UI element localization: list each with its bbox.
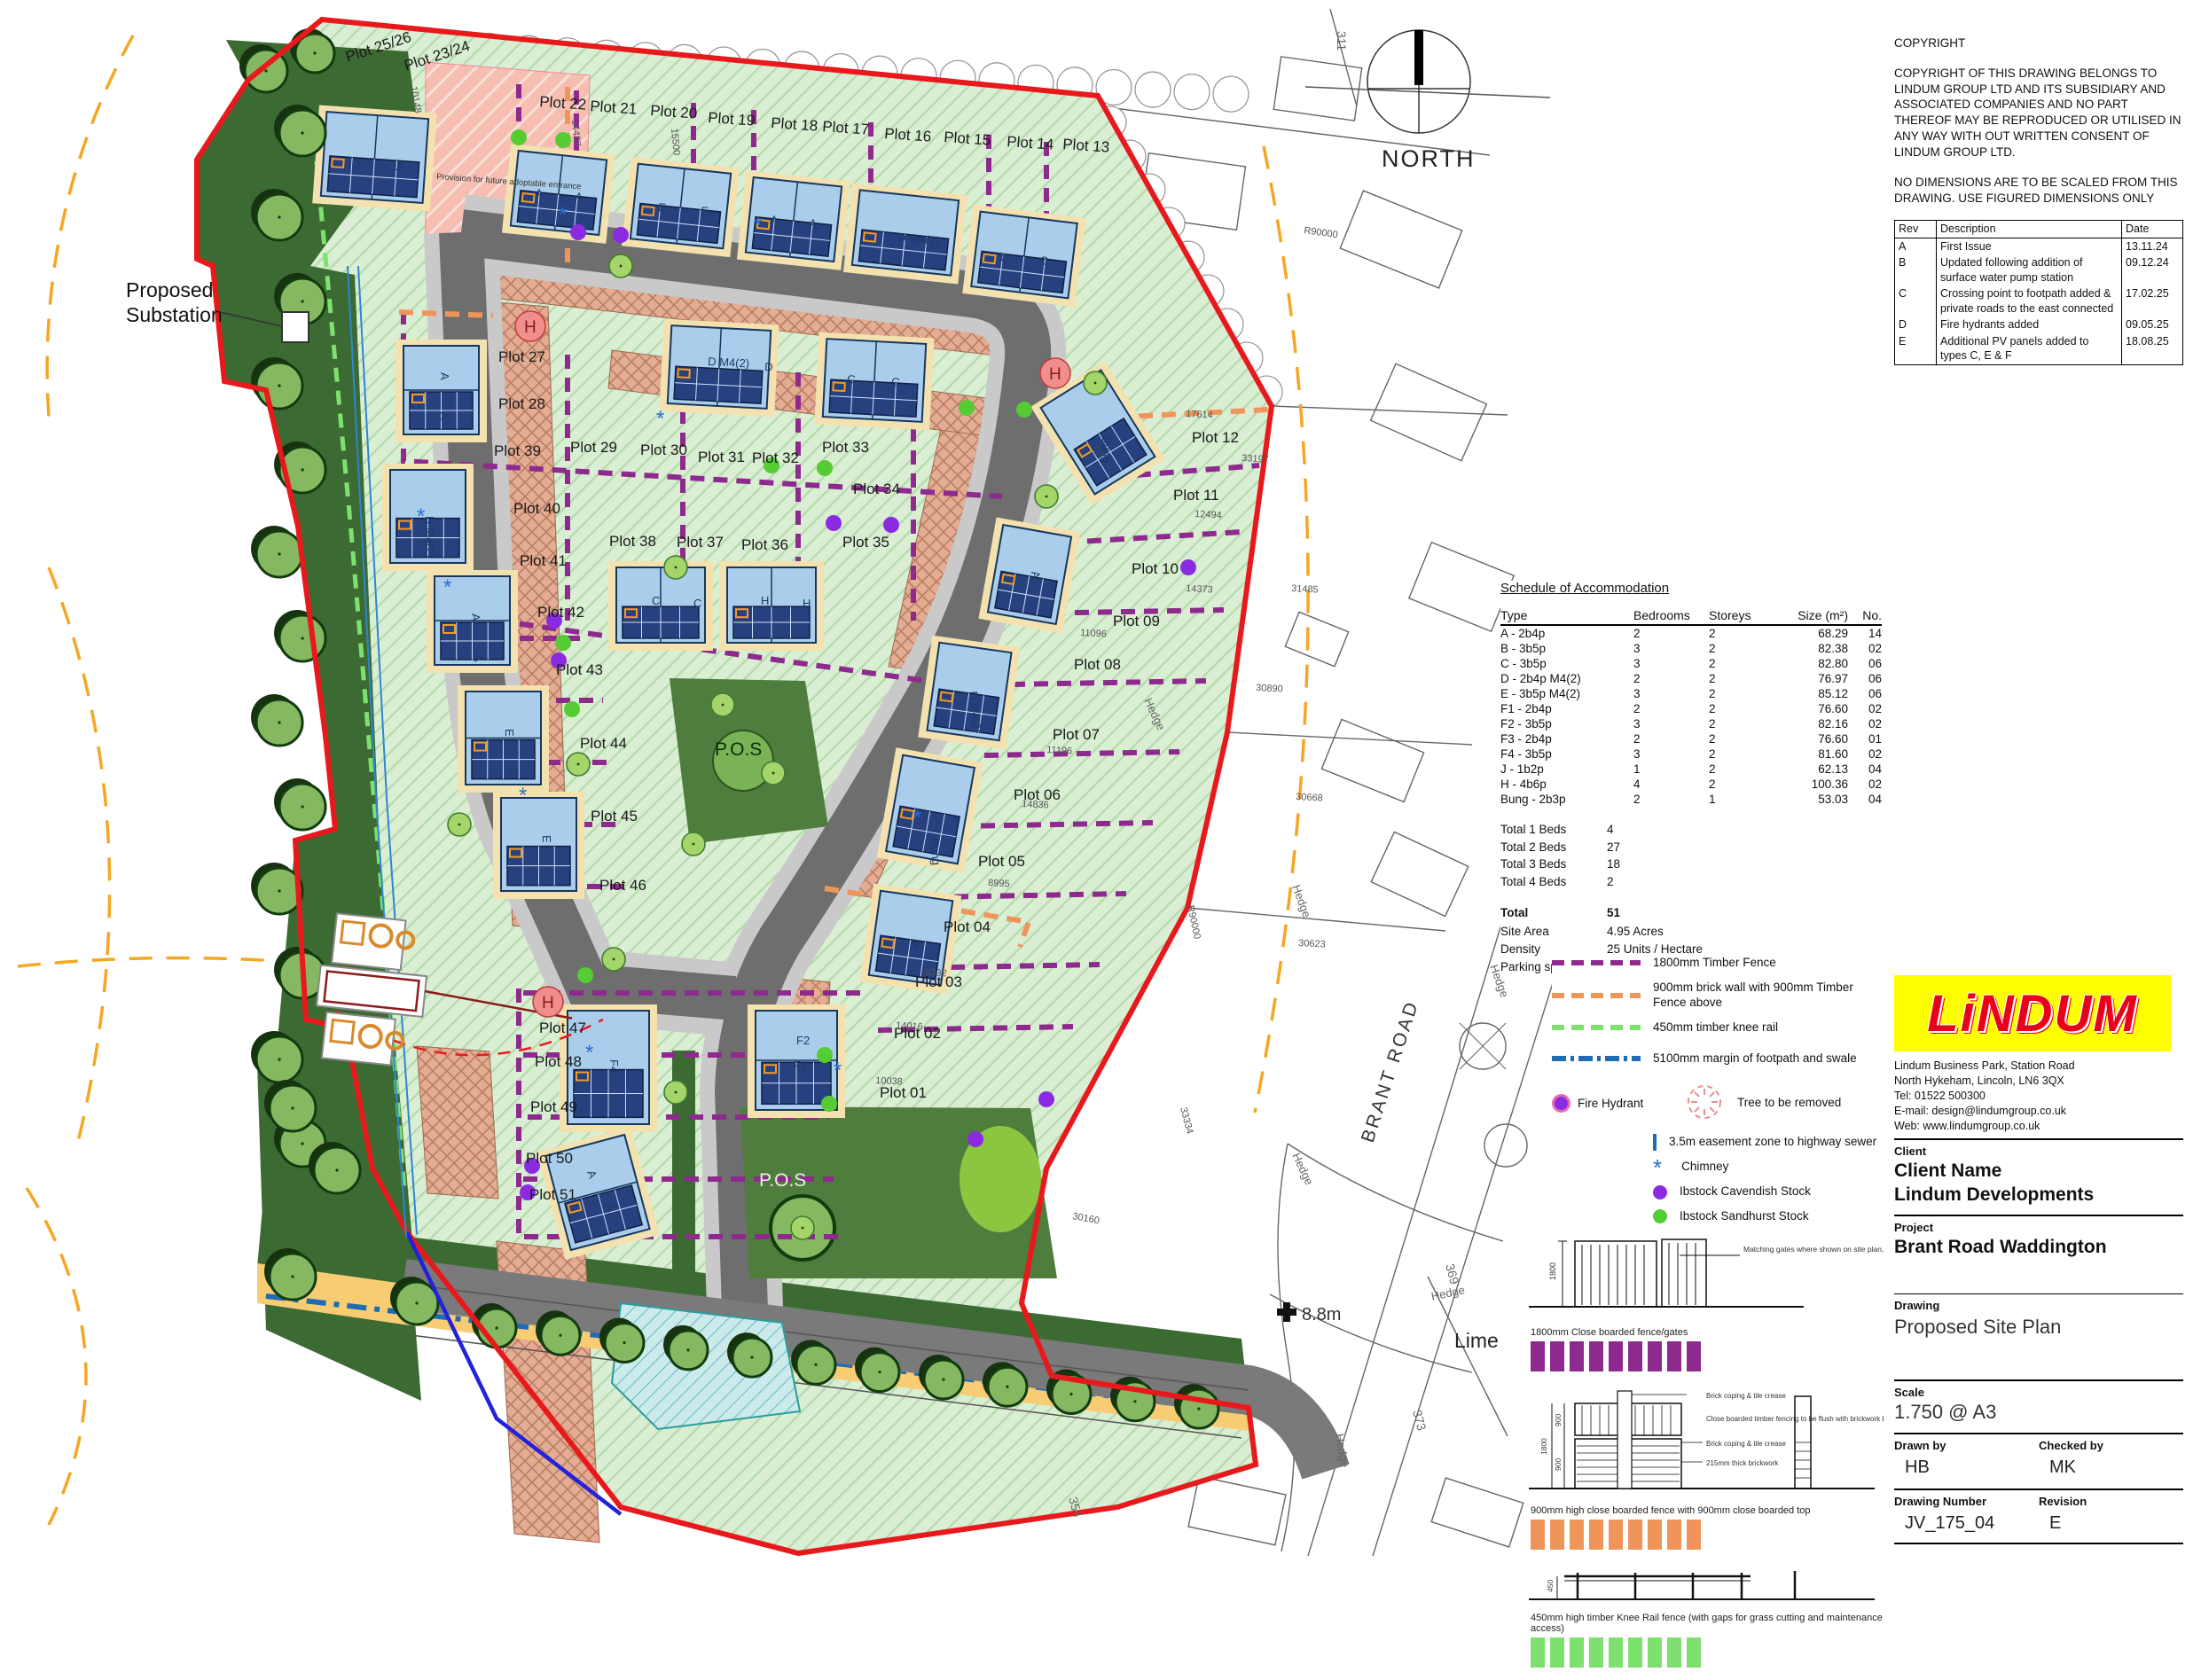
client-company: Lindum Developments bbox=[1894, 1184, 2183, 1206]
sandhurst-brick-dot bbox=[555, 132, 571, 148]
house-type-letter: A bbox=[575, 190, 584, 204]
bed-total-row: Total 4 Beds2 bbox=[1500, 873, 1882, 891]
legend-label: Tree to be removed bbox=[1737, 1096, 1841, 1111]
revision-cell: 13.11.24 bbox=[2122, 238, 2183, 254]
plot-label: Plot 32 bbox=[752, 449, 799, 466]
schedule-cell: 1 bbox=[1709, 792, 1793, 807]
dimension-label: 14836 bbox=[1022, 799, 1049, 811]
sandhurst-brick-dot bbox=[817, 1047, 833, 1063]
schedule-header-no: No. bbox=[1848, 608, 1882, 625]
company-address: Lindum Business Park, Station Road North… bbox=[1894, 1059, 2183, 1133]
house-type-letter: A bbox=[809, 216, 818, 231]
plot-label: Plot 18 bbox=[771, 114, 819, 135]
revision-cell: 17.02.25 bbox=[2122, 285, 2183, 316]
schedule-cell: 82.38 bbox=[1793, 641, 1848, 656]
plot-label: Plot 49 bbox=[530, 1098, 577, 1115]
schedule-header-size: Size (m²) bbox=[1793, 608, 1848, 625]
dimension-label: R90000 bbox=[1185, 904, 1202, 940]
client-name: Client Name bbox=[1894, 1160, 2183, 1182]
north-needle bbox=[1414, 30, 1423, 85]
drawn-checked-section: Drawn by HB Checked by MK bbox=[1894, 1433, 2183, 1489]
cavendish-brick-dot bbox=[826, 515, 842, 531]
plot-label: Plot 10 bbox=[1132, 560, 1179, 577]
house-type-letter: C bbox=[891, 375, 900, 388]
svg-text:900: 900 bbox=[1554, 1414, 1563, 1426]
schedule-cell: 2 bbox=[1633, 731, 1709, 746]
plot-label: Plot 11 bbox=[1173, 487, 1219, 504]
schedule-cell: B - 3b5p bbox=[1500, 641, 1633, 656]
cavendish-brick-dot bbox=[613, 227, 629, 243]
total-label: Total bbox=[1500, 904, 1607, 922]
legend-label: Fire Hydrant bbox=[1578, 1097, 1684, 1110]
fence-line bbox=[1011, 681, 1206, 684]
plot-label: Plot 43 bbox=[556, 661, 603, 678]
schedule-cell: 2 bbox=[1709, 731, 1793, 746]
plot-label: Plot 38 bbox=[609, 533, 656, 550]
dimension-label: 30623 bbox=[1298, 938, 1326, 950]
svg-text:450: 450 bbox=[1546, 1580, 1555, 1592]
plot-label: Plot 35 bbox=[842, 534, 889, 551]
revision-cell: Fire hydrants added bbox=[1937, 316, 2122, 333]
house-type-letter: A bbox=[438, 372, 451, 380]
schedule-cell: 2 bbox=[1709, 686, 1793, 701]
substation-box bbox=[282, 312, 309, 342]
schedule-cell: 4 bbox=[1633, 777, 1709, 792]
pos-label-1: P.O.S bbox=[715, 739, 762, 760]
schedule-cell: 100.36 bbox=[1793, 777, 1848, 792]
schedule-row: A - 2b4p2268.2914 bbox=[1500, 625, 1882, 641]
schedule-cell: 04 bbox=[1848, 762, 1882, 777]
fence-detail-drawings: 1800 Matching gates where shown on site … bbox=[1529, 1225, 1884, 1680]
schedule-cell: 02 bbox=[1848, 701, 1882, 716]
total-value: 51 bbox=[1607, 906, 1620, 919]
dimension-label: R90000 bbox=[1304, 225, 1339, 240]
legend-label: Ibstock Cavendish Stock bbox=[1680, 1184, 1811, 1199]
plot-label: Plot 17 bbox=[822, 118, 870, 138]
checked-by-value: MK bbox=[2049, 1457, 2183, 1478]
chimney-star: * bbox=[519, 784, 527, 808]
plot-label: Plot 37 bbox=[677, 534, 724, 551]
client-section: Client Client Name Lindum Developments bbox=[1894, 1138, 2183, 1215]
copyright-note: NO DIMENSIONS ARE TO BE SCALED FROM THIS… bbox=[1894, 175, 2183, 207]
drawn-by-value: HB bbox=[1905, 1457, 2039, 1478]
sandhurst-brick-dot bbox=[817, 460, 833, 476]
plot-label: Plot 20 bbox=[650, 102, 698, 122]
schedule-cell: F2 - 3b5p bbox=[1500, 716, 1633, 731]
number-revision-section: Drawing Number JV_175_04 Revision E bbox=[1894, 1489, 2183, 1544]
schedule-title: Schedule of Accommodation bbox=[1500, 581, 1882, 596]
dimension-label: 9332 bbox=[925, 967, 947, 979]
plot-label: Plot 36 bbox=[741, 536, 788, 553]
brant-road-label: BRANT ROAD bbox=[1358, 997, 1423, 1145]
plot-label: Plot 19 bbox=[708, 109, 756, 129]
legend-label: 5100mm margin of footpath and swale bbox=[1653, 1051, 1857, 1067]
copyright-body: COPYRIGHT OF THIS DRAWING BELONGS TO LIN… bbox=[1894, 66, 2183, 160]
chimney-star: * bbox=[656, 407, 664, 431]
schedule-cell: F3 - 2b4p bbox=[1500, 731, 1633, 746]
substation-label-line2: Substation bbox=[126, 303, 223, 326]
dimension-label: 14016 bbox=[896, 1020, 923, 1033]
revision-value: E bbox=[2049, 1513, 2183, 1534]
plot-label: Plot 15 bbox=[944, 129, 991, 149]
schedule-cell: 62.13 bbox=[1793, 762, 1848, 777]
svg-text:1800: 1800 bbox=[1548, 1262, 1557, 1280]
fence-line bbox=[984, 752, 1179, 755]
schedule-cell: H - 4b6p bbox=[1500, 777, 1633, 792]
tree-removed-icon bbox=[1684, 1082, 1725, 1125]
house-type-letter: D M4(2) bbox=[423, 516, 436, 558]
easement-swatch bbox=[1653, 1136, 1657, 1149]
fence-detail-1800: 1800 Matching gates where shown on site … bbox=[1529, 1225, 1884, 1323]
schedule-row: Bung - 2b3p2153.0304 bbox=[1500, 792, 1882, 807]
checked-by-label: Checked by bbox=[2039, 1439, 2183, 1452]
site-area-label: Site Area bbox=[1500, 923, 1607, 941]
legend-row-knee-rail: 450mm timber knee rail bbox=[1552, 1020, 1889, 1035]
legend-label: Ibstock Sandhurst Stock bbox=[1680, 1209, 1809, 1224]
plot-label: Plot 08 bbox=[1074, 656, 1121, 673]
schedule-row: F2 - 3b5p3282.1602 bbox=[1500, 716, 1882, 731]
dimension-label: 30668 bbox=[1296, 792, 1323, 804]
schedule-cell: 76.60 bbox=[1793, 731, 1848, 746]
schedule-header-bedrooms: Bedrooms bbox=[1633, 608, 1709, 625]
plot-label: Plot 39 bbox=[494, 442, 541, 459]
house-type-letter: E bbox=[658, 200, 667, 215]
green-dash-swatch bbox=[1552, 1023, 1641, 1032]
drawing-number-label: Drawing Number bbox=[1894, 1495, 2039, 1508]
svg-text:900: 900 bbox=[1554, 1458, 1563, 1471]
schedule-header-storeys: Storeys bbox=[1709, 608, 1793, 625]
hedge-label: Hedge bbox=[1430, 1283, 1467, 1303]
dimension-label: 11096 bbox=[1080, 628, 1107, 640]
sandhurst-brick-dot bbox=[959, 400, 975, 416]
svg-text:215mm thick brickwork: 215mm thick brickwork bbox=[1706, 1459, 1779, 1467]
schedule-row: E - 3b5p M4(2)3285.1206 bbox=[1500, 686, 1882, 701]
schedule-cell: 14 bbox=[1848, 625, 1882, 641]
house-type-letter: D M4(2) bbox=[708, 355, 750, 370]
schedule-cell: 2 bbox=[1709, 762, 1793, 777]
schedule-cell: E - 3b5p M4(2) bbox=[1500, 686, 1633, 701]
house-type-letter: J bbox=[396, 160, 402, 174]
house-type-letter: A bbox=[770, 213, 779, 227]
chimney-star-icon: * bbox=[1653, 1163, 1662, 1172]
drawing-section: Drawing Proposed Site Plan bbox=[1894, 1293, 2183, 1379]
lindum-logo: LiNDUM bbox=[1894, 975, 2171, 1051]
project-label: Project bbox=[1894, 1221, 2183, 1234]
plot-label: Plot 22 bbox=[539, 93, 587, 113]
revision-cell: E bbox=[1895, 333, 1937, 365]
os-number-label: 311 bbox=[1335, 31, 1349, 51]
legend-row-hydrant-tree: Fire Hydrant Tree to be removed bbox=[1552, 1082, 1889, 1125]
schedule-cell: J - 1b2p bbox=[1500, 762, 1633, 777]
hedge-label: Hedge bbox=[1289, 1151, 1316, 1187]
plot-label: Plot 05 bbox=[978, 853, 1025, 870]
purple-dash-strip bbox=[1531, 1341, 1884, 1371]
project-name: Brant Road Waddington bbox=[1894, 1237, 2183, 1258]
revision-row: BUpdated following addition of surface w… bbox=[1895, 254, 2183, 285]
house-type-letter: E bbox=[540, 835, 553, 843]
schedule-row: F3 - 2b4p2276.6001 bbox=[1500, 731, 1882, 746]
legend-label: Chimney bbox=[1681, 1160, 1728, 1175]
schedule-cell: 2 bbox=[1709, 701, 1793, 716]
schedule-cell: 2 bbox=[1709, 716, 1793, 731]
house-type-letter: D bbox=[764, 360, 773, 373]
schedule-cell: F4 - 3b5p bbox=[1500, 746, 1633, 762]
schedule-cell: 2 bbox=[1709, 641, 1793, 656]
benchmark-cross bbox=[1277, 1302, 1296, 1322]
schedule-cell: 2 bbox=[1709, 656, 1793, 671]
house-block bbox=[502, 144, 615, 244]
plot-label: Plot 45 bbox=[591, 808, 638, 824]
notes-column: COPYRIGHT COPYRIGHT OF THIS DRAWING BELO… bbox=[1894, 35, 2183, 365]
revision-cell: C bbox=[1895, 285, 1937, 316]
scale-label: Scale bbox=[1894, 1386, 2183, 1399]
hedge-label: Hedge bbox=[1289, 883, 1313, 919]
house-type-letter: H bbox=[761, 594, 769, 607]
house-type-letter: Bung bbox=[1100, 436, 1113, 463]
schedule-cell: 82.80 bbox=[1793, 656, 1848, 671]
drawing-name: Proposed Site Plan bbox=[1894, 1316, 2183, 1339]
drawn-by-label: Drawn by bbox=[1894, 1439, 2039, 1452]
cavendish-brick-dot bbox=[1180, 559, 1196, 575]
fence-caption-1800: 1800mm Close boarded fence/gates bbox=[1531, 1327, 1884, 1338]
schedule-cell: 68.29 bbox=[1793, 625, 1848, 641]
schedule-cell: 02 bbox=[1848, 641, 1882, 656]
schedule-row: H - 4b6p42100.3602 bbox=[1500, 777, 1882, 792]
plot-label: Plot 46 bbox=[599, 877, 646, 894]
plot-label: Plot 42 bbox=[537, 604, 584, 621]
schedule-header-type: Type bbox=[1500, 608, 1633, 625]
legend-row-easement: 3.5m easement zone to highway sewer bbox=[1552, 1135, 1889, 1150]
schedule-cell: 2 bbox=[1633, 625, 1709, 641]
house-type-letter: C bbox=[652, 594, 660, 607]
dimension-label: 30160 bbox=[1071, 1211, 1100, 1226]
plot-label: Plot 27 bbox=[498, 348, 545, 365]
dimension-label: 30890 bbox=[1256, 683, 1283, 695]
revision-row: EAdditional PV panels added to types C, … bbox=[1895, 333, 2183, 365]
legend-row-chimney: * Chimney bbox=[1552, 1160, 1889, 1175]
svg-text:Brick coping & tile crease: Brick coping & tile crease bbox=[1706, 1392, 1786, 1400]
plot-label: Plot 21 bbox=[590, 98, 638, 118]
bed-total-row: Total 3 Beds18 bbox=[1500, 856, 1882, 873]
schedule-cell: 06 bbox=[1848, 671, 1882, 686]
schedule-cell: 85.12 bbox=[1793, 686, 1848, 701]
cavendish-brick-dot bbox=[883, 517, 899, 533]
orange-dash-swatch bbox=[1552, 991, 1641, 1000]
svg-text:1800: 1800 bbox=[1539, 1438, 1548, 1455]
house-type-letter: A bbox=[438, 412, 451, 420]
schedule-cell: C - 3b5p bbox=[1500, 656, 1633, 671]
sandhurst-dot-icon bbox=[1653, 1209, 1667, 1223]
house-type-letter: Bung bbox=[928, 838, 944, 866]
schedule-cell: 76.60 bbox=[1793, 701, 1848, 716]
bed-total-row: Total 2 Beds27 bbox=[1500, 839, 1882, 856]
revision-cell: 09.12.24 bbox=[2122, 254, 2183, 285]
schedule-cell: D - 2b4p M4(2) bbox=[1500, 671, 1633, 686]
schedule-cell: 04 bbox=[1848, 792, 1882, 807]
plot-label: Plot 16 bbox=[884, 125, 932, 145]
substation-label-line1: Proposed bbox=[126, 278, 213, 301]
house-type-letter: F4 bbox=[607, 1059, 621, 1073]
schedule-cell: 02 bbox=[1848, 777, 1882, 792]
fence-line bbox=[958, 823, 1153, 826]
schedule-cell: 01 bbox=[1848, 731, 1882, 746]
dimension-label: 14373 bbox=[1186, 583, 1213, 596]
schedule-cell: 82.16 bbox=[1793, 716, 1848, 731]
schedule-row: F1 - 2b4p2276.6002 bbox=[1500, 701, 1882, 716]
north-label: NORTH bbox=[1382, 145, 1476, 172]
drawing-number-value: JV_175_04 bbox=[1905, 1513, 2039, 1534]
schedule-row: D - 2b4p M4(2)2276.9706 bbox=[1500, 671, 1882, 686]
plot-label: Plot 40 bbox=[513, 500, 560, 517]
house-block bbox=[814, 332, 934, 431]
schedule-cell: 1 bbox=[1633, 762, 1709, 777]
plot-label: Plot 04 bbox=[944, 918, 991, 935]
dimension-label: 31485 bbox=[1291, 583, 1319, 596]
plot-label: Plot 29 bbox=[570, 439, 617, 456]
schedule-cell: A - 2b4p bbox=[1500, 625, 1633, 641]
house-type-letter: E bbox=[506, 770, 520, 777]
copyright-title: COPYRIGHT bbox=[1894, 35, 2183, 51]
schedule-cell: 2 bbox=[1709, 777, 1793, 792]
house-type-letter: A bbox=[469, 613, 482, 621]
legend-row-sandhurst: Ibstock Sandhurst Stock bbox=[1552, 1209, 1889, 1224]
plot-label: Plot 41 bbox=[520, 552, 567, 569]
title-block: LiNDUM Lindum Business Park, Station Roa… bbox=[1894, 975, 2183, 1544]
legend-label: 450mm timber knee rail bbox=[1653, 1020, 1778, 1035]
svg-text:Close boarded timber fencing t: Close boarded timber fencing to be flush… bbox=[1706, 1415, 1884, 1423]
revision-label: Revision bbox=[2039, 1495, 2183, 1508]
chimney-star: * bbox=[559, 203, 567, 227]
schedule-cell: 2 bbox=[1709, 671, 1793, 686]
legend-label: 3.5m easement zone to highway sewer bbox=[1669, 1135, 1876, 1150]
schedule-cell: 2 bbox=[1633, 671, 1709, 686]
house-block bbox=[493, 792, 584, 899]
lindum-logo-text: LiNDUM bbox=[1927, 984, 2138, 1043]
dimension-label: 33197 bbox=[1241, 453, 1269, 465]
chimney-star: * bbox=[754, 214, 762, 238]
dimension-label: 17614 bbox=[1186, 409, 1213, 421]
blue-dashdot-swatch bbox=[1552, 1054, 1641, 1063]
schedule-cell: F1 - 2b4p bbox=[1500, 701, 1633, 716]
plot-label: Plot 12 bbox=[1192, 429, 1239, 446]
schedule-cell: 2 bbox=[1709, 746, 1793, 762]
plot-label: Plot 09 bbox=[1113, 613, 1160, 629]
rev-header: Date bbox=[2122, 221, 2183, 238]
scale-value: 1.750 @ A3 bbox=[1894, 1401, 2183, 1424]
schedule-row: B - 3b5p3282.3802 bbox=[1500, 641, 1882, 656]
plot-label: Plot 07 bbox=[1053, 726, 1100, 743]
bed-total-row: Total 1 Beds4 bbox=[1500, 821, 1882, 839]
site-area-value: 4.95 Acres bbox=[1607, 925, 1664, 938]
cavendish-brick-dot bbox=[967, 1131, 983, 1147]
scale-section: Scale 1.750 @ A3 bbox=[1894, 1379, 2183, 1433]
cavendish-brick-dot bbox=[1038, 1091, 1054, 1107]
revision-cell: B bbox=[1895, 254, 1937, 285]
schedule-cell: 2 bbox=[1709, 625, 1793, 641]
plot-label: Plot 33 bbox=[822, 439, 869, 456]
project-section: Project Brant Road Waddington bbox=[1894, 1215, 2183, 1293]
house-type-letter: J bbox=[355, 158, 361, 171]
house-type-letter: C bbox=[693, 597, 701, 610]
chimney-star: * bbox=[834, 1059, 842, 1082]
lime-label: Lime bbox=[1454, 1329, 1499, 1352]
house-type-letter: C bbox=[1039, 254, 1049, 268]
house-type-letter: E bbox=[701, 204, 709, 218]
legend-row-cavendish: Ibstock Cavendish Stock bbox=[1552, 1184, 1889, 1199]
pos-label-2: P.O.S bbox=[759, 1170, 806, 1191]
density-value: 25 Units / Hectare bbox=[1607, 942, 1703, 956]
sandhurst-brick-dot bbox=[564, 701, 580, 717]
house-type-letter: F1 bbox=[794, 1059, 807, 1072]
fire-hydrant-letter: H bbox=[524, 318, 537, 337]
chimney-star: * bbox=[443, 575, 451, 599]
plot-label: Plot 30 bbox=[640, 441, 687, 458]
revision-row: CCrossing point to footpath added & priv… bbox=[1895, 285, 2183, 316]
sandhurst-brick-dot bbox=[821, 1096, 837, 1112]
purple-dash-swatch bbox=[1552, 958, 1641, 967]
schedule-row: J - 1b2p1262.1304 bbox=[1500, 762, 1882, 777]
os-number-label: 369 bbox=[1443, 1262, 1462, 1286]
schedule-table: Type Bedrooms Storeys Size (m²) No. A - … bbox=[1500, 608, 1882, 807]
schedule-cell: 76.97 bbox=[1793, 671, 1848, 686]
dimension-label: 11196 bbox=[1046, 745, 1073, 756]
svg-text:Brick coping & tile crease: Brick coping & tile crease bbox=[1706, 1440, 1786, 1448]
schedule-cell: 3 bbox=[1633, 686, 1709, 701]
revision-cell: First Issue bbox=[1937, 238, 2122, 254]
dimension-label: 12494 bbox=[1194, 509, 1222, 521]
sandhurst-brick-dot bbox=[511, 129, 527, 145]
house-block bbox=[396, 340, 487, 442]
fence-detail-900: 1800 900 900 Brick coping & tile crease … bbox=[1529, 1384, 1884, 1501]
legend-row-margin: 5100mm margin of footpath and swale bbox=[1552, 1051, 1889, 1067]
schedule-cell: Bung - 2b3p bbox=[1500, 792, 1633, 807]
schedule-cell: 3 bbox=[1633, 641, 1709, 656]
house-block bbox=[622, 157, 740, 257]
sandhurst-brick-dot bbox=[1016, 402, 1032, 418]
orange-dash-strip bbox=[1531, 1520, 1884, 1550]
revision-cell: A bbox=[1895, 238, 1937, 254]
schedule-cell: 3 bbox=[1633, 716, 1709, 731]
legend-label: 1800mm Timber Fence bbox=[1653, 956, 1776, 971]
schedule-row: F4 - 3b5p3281.6002 bbox=[1500, 746, 1882, 762]
plot-label: Plot 48 bbox=[535, 1053, 582, 1070]
schedule-cell: 02 bbox=[1848, 716, 1882, 731]
revision-cell: Crossing point to footpath added & priva… bbox=[1937, 285, 2122, 316]
sandhurst-brick-dot bbox=[577, 967, 593, 983]
schedule-row: C - 3b5p3282.8006 bbox=[1500, 656, 1882, 671]
legend-row-brick-wall: 900mm brick wall with 900mm Timber Fence… bbox=[1552, 981, 1889, 1011]
attenuation-area bbox=[612, 1303, 800, 1429]
schedule-cell: 2 bbox=[1633, 792, 1709, 807]
plot-label: Plot 51 bbox=[529, 1186, 576, 1203]
chimney-star: * bbox=[913, 806, 921, 830]
house-type-letter: H bbox=[803, 597, 811, 610]
revision-cell: Updated following addition of surface wa… bbox=[1937, 254, 2122, 285]
cavendish-dot-icon bbox=[1653, 1185, 1667, 1199]
sandhurst-brick-dot bbox=[555, 635, 571, 651]
rev-header: Description bbox=[1937, 221, 2122, 238]
plot-label: Plot 34 bbox=[853, 481, 900, 497]
site-plan-sheet: { "sheet": { "north_label": "NORTH", "su… bbox=[0, 0, 2201, 1556]
house-block bbox=[962, 205, 1085, 308]
dimension-label: 33334 bbox=[1178, 1106, 1195, 1136]
drawing-label: Drawing bbox=[1894, 1299, 2183, 1312]
plot-label: Plot 50 bbox=[526, 1150, 573, 1167]
fence-note: Matching gates where shown on site plan,… bbox=[1743, 1245, 1884, 1254]
plot-label: Plot 44 bbox=[580, 735, 627, 752]
legend-label: 900mm brick wall with 900mm Timber Fence… bbox=[1653, 981, 1889, 1011]
revision-table: Rev Description Date AFirst Issue13.11.2… bbox=[1894, 220, 2183, 365]
